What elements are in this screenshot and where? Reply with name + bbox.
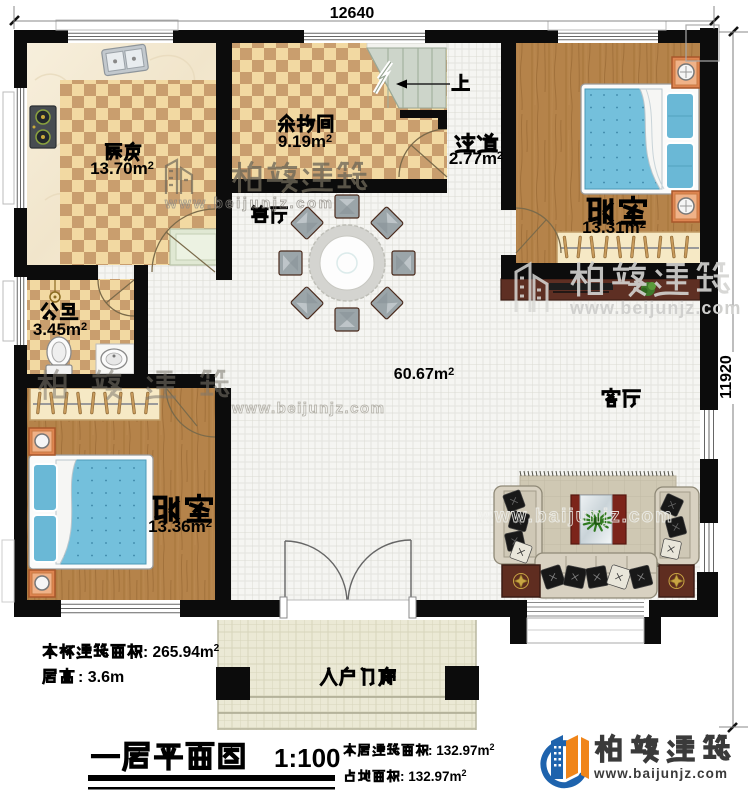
svg-text:3.45m2: 3.45m2 <box>33 320 87 339</box>
svg-text:: 132.97m2: : 132.97m2 <box>400 768 467 784</box>
svg-text:: 3.6m: : 3.6m <box>78 669 124 686</box>
svg-text:13.70m2: 13.70m2 <box>90 159 154 178</box>
svg-text:www.baijunjz.com: www.baijunjz.com <box>593 766 728 781</box>
svg-text:12640: 12640 <box>330 5 375 22</box>
svg-text:: 265.94m2: : 265.94m2 <box>143 643 220 661</box>
svg-text:1:100: 1:100 <box>274 743 341 773</box>
svg-text:9.19m2: 9.19m2 <box>278 132 332 151</box>
svg-text:: 132.97m2: : 132.97m2 <box>428 742 495 758</box>
svg-text:11920: 11920 <box>718 355 735 399</box>
svg-text:13.31m2: 13.31m2 <box>582 218 646 237</box>
svg-text:www.baijunjz.com: www.baijunjz.com <box>477 506 674 527</box>
svg-text:13.36m2: 13.36m2 <box>148 517 212 536</box>
svg-text:2.77m2: 2.77m2 <box>449 149 503 168</box>
svg-text:www.beijunjz.com: www.beijunjz.com <box>569 298 741 318</box>
svg-text:www.beijunjz.com: www.beijunjz.com <box>231 400 385 417</box>
svg-text:60.67m2: 60.67m2 <box>394 366 454 383</box>
svg-text:www.beijunjz.com: www.beijunjz.com <box>164 195 334 212</box>
